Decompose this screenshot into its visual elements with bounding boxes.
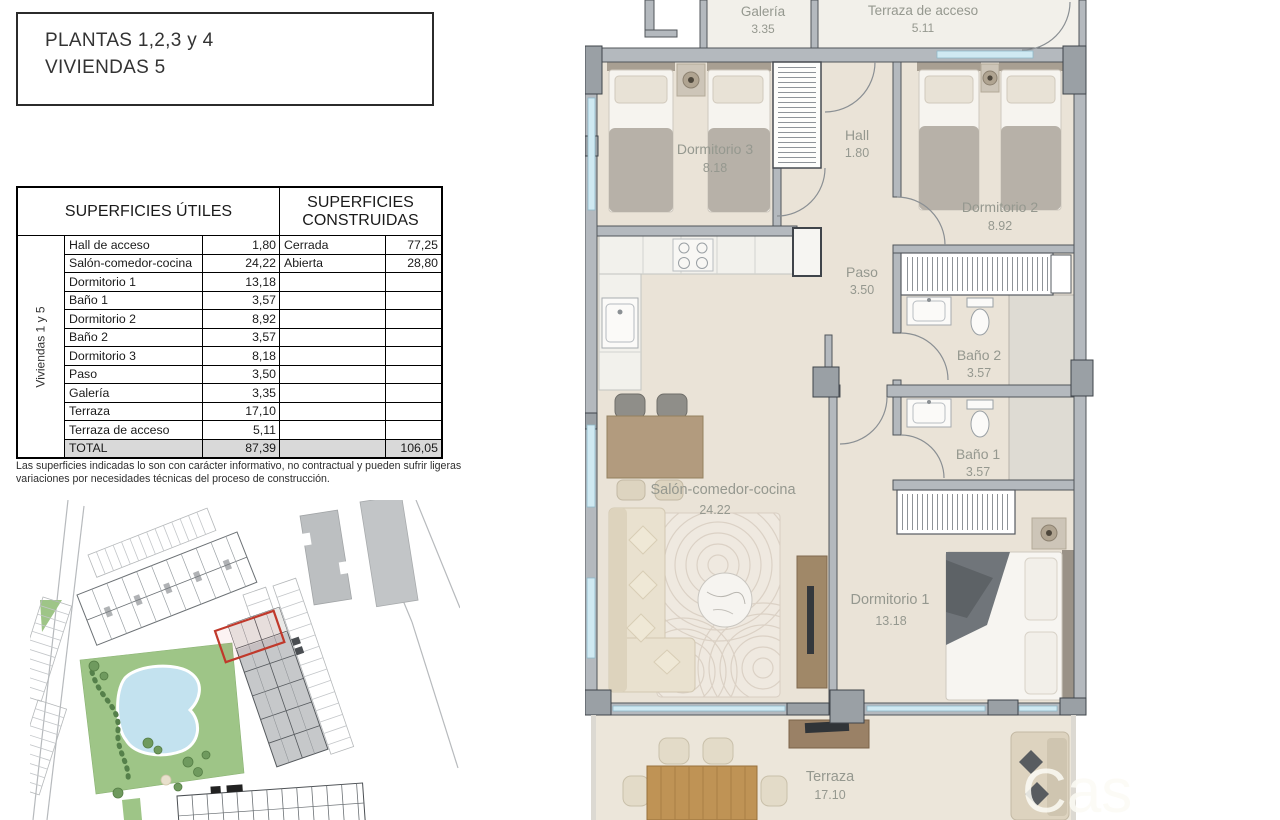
table-rows: Hall de acceso 1,80 Cerrada 77,25 Salón-… bbox=[65, 236, 441, 457]
surfaces-table: SUPERFICIES ÚTILES SUPERFICIES CONSTRUID… bbox=[16, 186, 443, 459]
nightstand bbox=[981, 64, 999, 92]
table-row: Terraza 17,10 bbox=[65, 402, 441, 421]
hall-wardrobe bbox=[773, 62, 821, 168]
site-building-gray-1 bbox=[299, 510, 353, 605]
room-area-hall: 1.80 bbox=[845, 146, 869, 160]
bathroom-sink-icon bbox=[907, 399, 951, 427]
site-sand-circle bbox=[161, 775, 171, 785]
room-label-hall: Hall bbox=[845, 127, 869, 143]
table-total-row: TOTAL 87,39 106,05 bbox=[65, 439, 441, 458]
title-box: PLANTAS 1,2,3 y 4 VIVIENDAS 5 bbox=[16, 12, 434, 106]
disclaimer-note: Las superficies indicadas lo son con car… bbox=[16, 460, 468, 486]
title-line-2: VIVIENDAS 5 bbox=[45, 54, 432, 81]
nightstand bbox=[1032, 518, 1066, 549]
page: PLANTAS 1,2,3 y 4 VIVIENDAS 5 SUPERFICIE… bbox=[0, 0, 1280, 820]
table-row: Terraza de acceso 5,11 bbox=[65, 420, 441, 439]
title-line-1: PLANTAS 1,2,3 y 4 bbox=[45, 27, 432, 54]
room-area-galeria: 3.35 bbox=[751, 22, 775, 36]
site-parking-strip bbox=[30, 700, 67, 795]
table-row: Dormitorio 2 8,92 bbox=[65, 309, 441, 328]
room-area-terraza: 17.10 bbox=[814, 788, 845, 802]
site-building-row-bottom bbox=[177, 776, 366, 820]
watermark: Cas bbox=[1022, 757, 1132, 820]
outdoor-tv-unit bbox=[789, 720, 869, 748]
room-label-salon: Salón-comedor-cocina bbox=[650, 482, 796, 498]
site-green-strip bbox=[122, 798, 142, 820]
bed-single bbox=[999, 62, 1063, 210]
room-area-bano-2: 3.57 bbox=[967, 366, 991, 380]
room-area-dormitorio-3: 8.18 bbox=[703, 161, 727, 175]
coffee-table bbox=[698, 573, 752, 627]
table-side-label: Viviendas 1 y 5 bbox=[18, 236, 65, 457]
table-header-utiles: SUPERFICIES ÚTILES bbox=[18, 188, 280, 236]
room-label-bano-2: Baño 2 bbox=[957, 347, 1002, 363]
room-label-terraza-acceso: Terraza de acceso bbox=[868, 3, 978, 18]
bed-single bbox=[707, 62, 771, 212]
hob-icon bbox=[673, 239, 713, 271]
room-area-dormitorio-1: 13.18 bbox=[875, 614, 906, 628]
dining-table bbox=[607, 416, 703, 478]
bed-single bbox=[917, 62, 981, 210]
bed-double bbox=[946, 550, 1074, 702]
room-label-dormitorio-2: Dormitorio 2 bbox=[962, 199, 1038, 215]
room-area-dormitorio-2: 8.92 bbox=[988, 219, 1012, 233]
floor-plan: Galería 3.35 Terraza de acceso 5.11 Dorm… bbox=[585, 0, 1145, 820]
bed-single bbox=[607, 62, 675, 212]
room-area-bano-1: 3.57 bbox=[966, 465, 990, 479]
table-row: Baño 1 3,57 bbox=[65, 291, 441, 310]
dorm1-wardrobe bbox=[897, 490, 1015, 534]
room-label-galeria: Galería bbox=[741, 4, 786, 19]
nightstand bbox=[677, 64, 705, 96]
outdoor-table bbox=[647, 766, 757, 820]
table-row: Hall de acceso 1,80 Cerrada 77,25 bbox=[65, 236, 441, 254]
table-row: Salón-comedor-cocina 24,22 Abierta 28,80 bbox=[65, 254, 441, 273]
table-row: Paso 3,50 bbox=[65, 365, 441, 384]
table-row: Dormitorio 1 13,18 bbox=[65, 272, 441, 291]
room-area-terraza-acceso: 5.11 bbox=[912, 21, 935, 35]
table-row: Dormitorio 3 8,18 bbox=[65, 346, 441, 365]
room-label-dormitorio-3: Dormitorio 3 bbox=[677, 141, 753, 157]
room-label-terraza: Terraza bbox=[806, 769, 855, 785]
room-area-paso: 3.50 bbox=[850, 283, 874, 297]
site-building-gray-2 bbox=[360, 500, 418, 607]
table-row: Baño 2 3,57 bbox=[65, 328, 441, 347]
kitchen-sink-icon bbox=[602, 298, 638, 348]
room-label-bano-1: Baño 1 bbox=[956, 446, 1001, 462]
bathroom-sink-icon bbox=[907, 297, 951, 325]
table-header-construidas: SUPERFICIES CONSTRUIDAS bbox=[280, 188, 441, 236]
tv-sideboard bbox=[797, 556, 827, 688]
room-label-paso: Paso bbox=[846, 264, 878, 280]
kitchen-end-column bbox=[793, 228, 821, 276]
table-row: Galería 3,35 bbox=[65, 383, 441, 402]
site-plan bbox=[30, 500, 460, 820]
paso-wardrobe bbox=[901, 253, 1071, 295]
site-park bbox=[80, 643, 244, 798]
site-pool bbox=[118, 666, 200, 755]
room-label-dormitorio-1: Dormitorio 1 bbox=[851, 592, 930, 608]
terrace-rail bbox=[591, 715, 596, 820]
room-area-salon: 24.22 bbox=[699, 503, 730, 517]
